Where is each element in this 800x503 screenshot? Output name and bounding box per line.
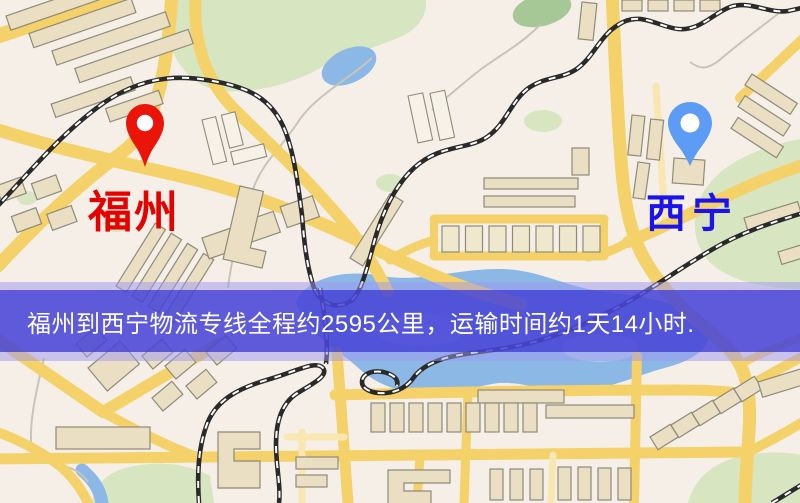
destination-pin-marker[interactable] <box>668 102 712 166</box>
destination-city-label: 西宁 <box>646 181 738 239</box>
route-info-text: 福州到西宁物流专线全程约2595公里，运输时间约1天14小时. <box>27 304 695 339</box>
origin-city-label: 福州 <box>88 176 180 240</box>
map-image <box>0 0 800 503</box>
origin-pin-marker[interactable] <box>126 104 164 167</box>
pin-icon <box>668 102 712 166</box>
map-view: 福州 西宁 福州到西宁物流专线全程约2595公里，运输时间约1天14小时. <box>0 0 800 503</box>
route-info-banner: 福州到西宁物流专线全程约2595公里，运输时间约1天14小时. <box>0 290 800 352</box>
pin-icon <box>126 104 164 167</box>
